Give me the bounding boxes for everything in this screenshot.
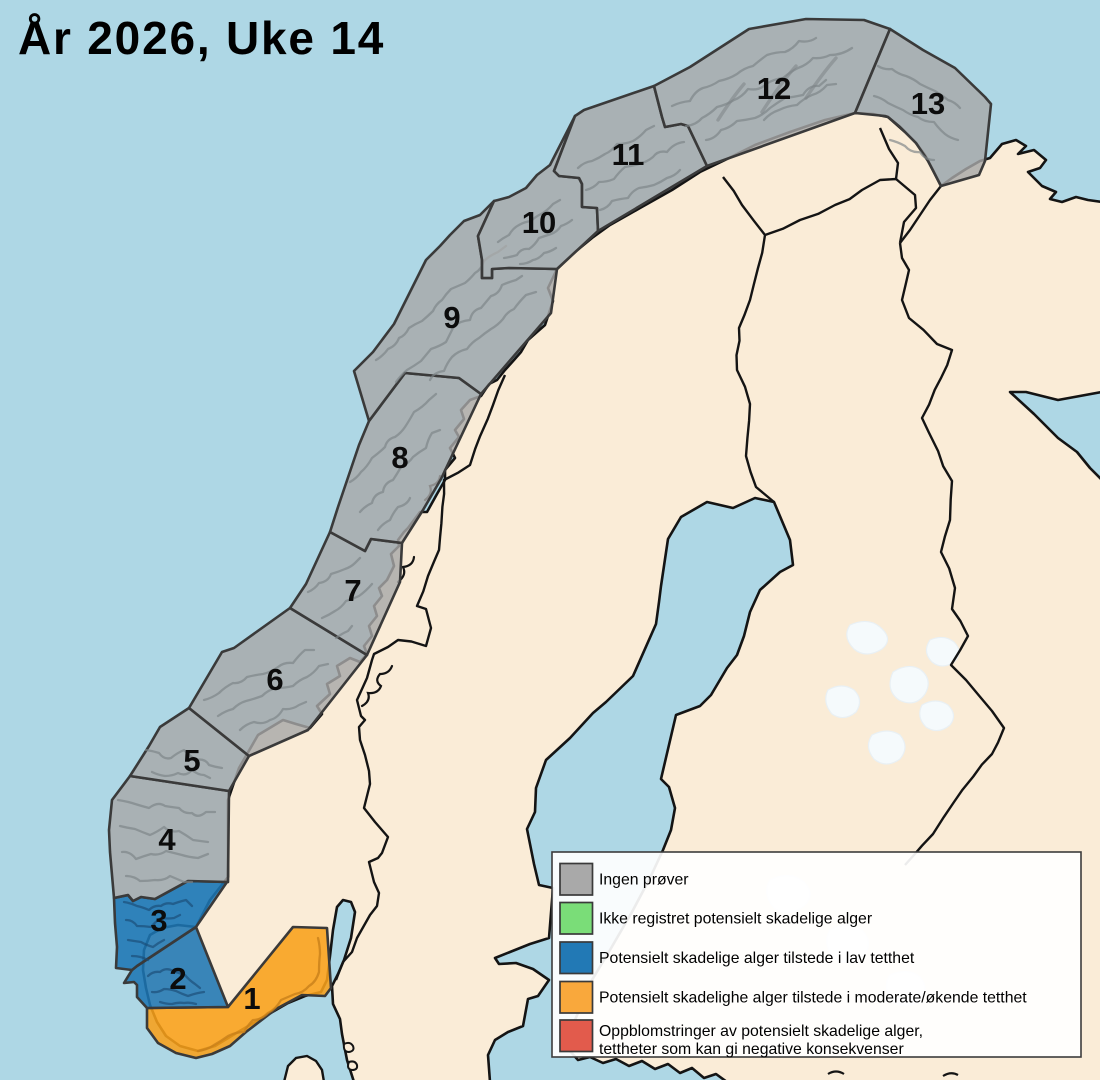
svg-text:tettheter som kan gi negative: tettheter som kan gi negative konsekvens…	[599, 1041, 904, 1058]
svg-text:13: 13	[911, 86, 945, 121]
svg-text:Oppblomstringer av potensielt: Oppblomstringer av potensielt skadelige …	[599, 1023, 923, 1040]
svg-text:9: 9	[443, 300, 460, 335]
svg-text:Ingen prøver: Ingen prøver	[599, 872, 689, 889]
svg-text:11: 11	[612, 137, 645, 172]
svg-text:4: 4	[158, 822, 176, 857]
svg-text:5: 5	[183, 743, 200, 778]
svg-text:Potensielt skadelige alger til: Potensielt skadelige alger tilstede i la…	[599, 950, 915, 967]
svg-text:6: 6	[266, 662, 283, 697]
svg-text:2: 2	[169, 961, 186, 996]
svg-text:7: 7	[344, 573, 361, 608]
svg-text:1: 1	[243, 981, 260, 1016]
svg-text:Ikke registret potensielt skad: Ikke registret potensielt skadelige alge…	[599, 911, 872, 928]
svg-text:3: 3	[150, 903, 167, 938]
svg-text:12: 12	[757, 71, 791, 106]
svg-text:År 2026, Uke 14: År 2026, Uke 14	[18, 12, 385, 64]
svg-text:8: 8	[391, 440, 408, 475]
svg-text:Potensielt skadelighe alger ti: Potensielt skadelighe alger tilstede i m…	[599, 990, 1027, 1007]
svg-text:10: 10	[522, 205, 556, 240]
